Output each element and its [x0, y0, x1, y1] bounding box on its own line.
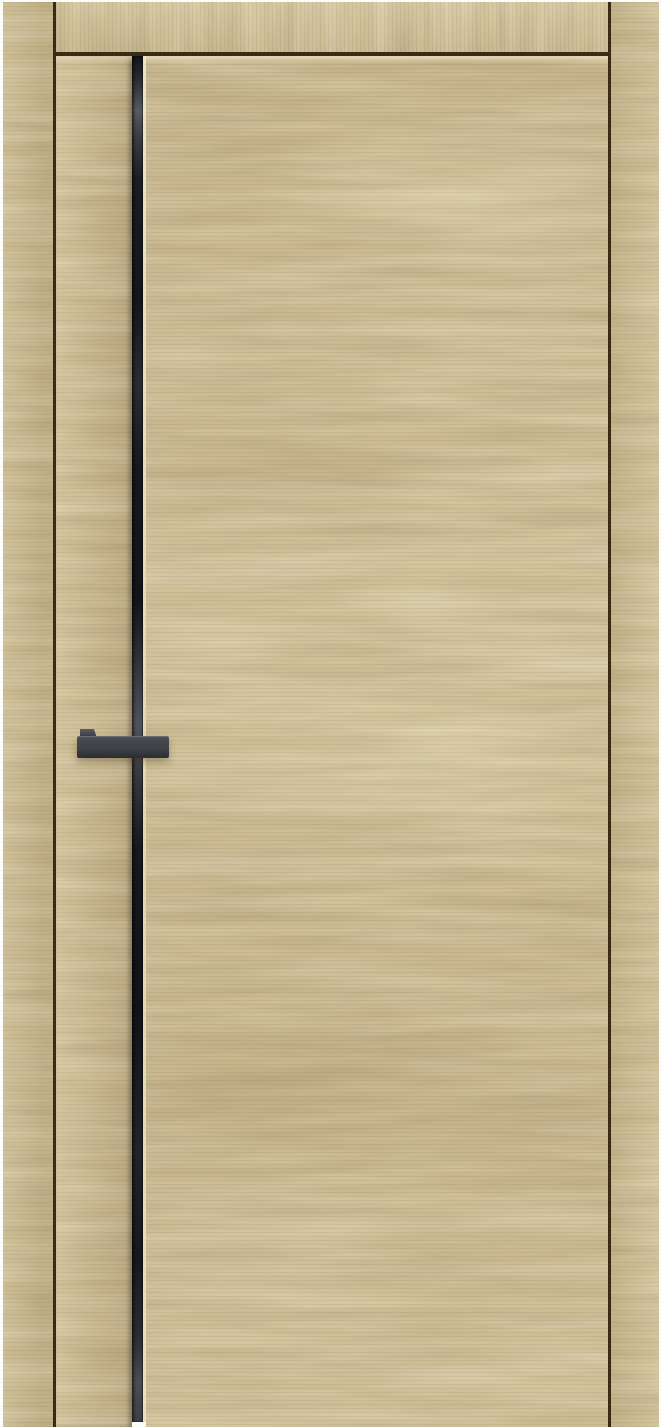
door-frame-casing-top — [56, 2, 608, 52]
door-handle-grip — [77, 736, 169, 758]
door-frame-casing-left — [3, 2, 54, 1427]
frame-leaf-gap-right — [608, 2, 611, 1427]
wood-grain-texture — [611, 2, 659, 1427]
wood-grain-texture — [56, 2, 608, 52]
wood-grain-texture — [146, 56, 608, 1427]
door-product-photo — [0, 0, 662, 1427]
door-leaf-panel — [146, 56, 608, 1427]
wood-grain-texture — [3, 2, 54, 1427]
door-frame-casing-right — [611, 2, 659, 1427]
